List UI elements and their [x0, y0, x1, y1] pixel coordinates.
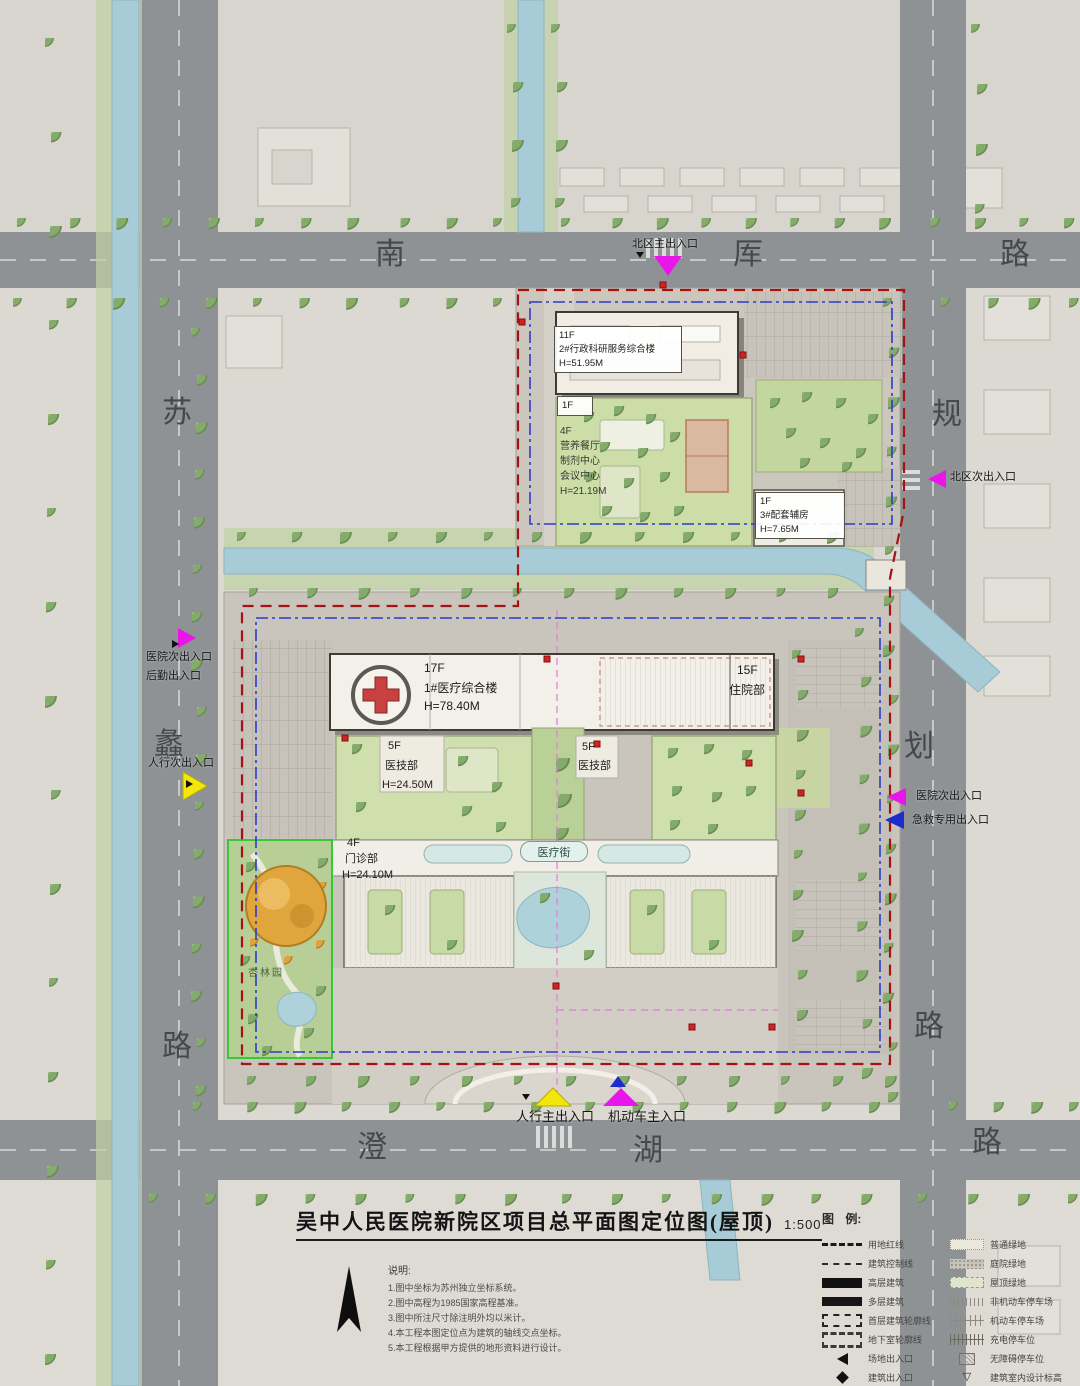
- road-label-west-3: 路: [162, 1030, 192, 1065]
- entrance-label-north-secondary: 北区次出入口: [950, 471, 1016, 484]
- label-building-3: 1F 3#配套辅房 H=7.65M: [755, 492, 845, 539]
- legend-label: 非机动车停车场: [990, 1295, 1053, 1308]
- note-line: 3.图中所注尺寸除注明外均以米计。: [388, 1311, 628, 1326]
- legend-left-column: 用地红线 建筑控制线 高层建筑 多层建筑 首层建筑轮廓线 地下室轮廓线 场地出入…: [822, 1235, 940, 1386]
- label-building-1-height: H=78.40M: [424, 700, 480, 714]
- road-label-east-3: 路: [914, 1010, 944, 1045]
- legend-label: 充电停车位: [990, 1333, 1035, 1346]
- entrance-label-west-hospital: 医院次出入口: [146, 651, 212, 664]
- legend-swatch-green-courtyard: [950, 1257, 984, 1270]
- label-building-1-name: 1#医疗综合楼: [424, 682, 497, 696]
- canal-west: [112, 0, 139, 1386]
- legend-swatch-car-parking: [950, 1314, 984, 1327]
- legend-right-column: 普通绿地 庭院绿地 屋顶绿地 非机动车停车场 机动车停车场 充电停车位 无障碍停…: [950, 1235, 1062, 1386]
- orange-tree-cluster: [246, 866, 326, 946]
- legend-swatch-building-entrance: [822, 1371, 862, 1384]
- legend-swatch-green-common: [950, 1238, 984, 1251]
- canopy-east: [598, 845, 690, 863]
- label-inpatient-name: 住院部: [729, 684, 765, 698]
- road-label-north-1: 南: [375, 238, 405, 273]
- canopy-west: [424, 845, 512, 863]
- legend-label: 普通绿地: [990, 1238, 1026, 1251]
- podium-floors: 1F: [562, 399, 588, 413]
- label-podium-1f: 1F: [557, 396, 593, 416]
- label-medtech-west-name: 医技部: [385, 760, 418, 773]
- legend-label: 高层建筑: [868, 1276, 904, 1289]
- label-outpatient-height: H=24.10M: [342, 869, 393, 882]
- label-medtech-east-floors: 5F: [582, 741, 595, 754]
- annex-line3: 会议中心: [560, 469, 606, 484]
- road-label-south-1: 澄: [357, 1131, 387, 1166]
- sheet-title: 吴中人民医院新院区项目总平面图定位图(屋顶) 1:500: [296, 1206, 822, 1241]
- title-text: 吴中人民医院新院区项目总平面图定位图(屋顶): [296, 1206, 774, 1236]
- legend-swatch-green-roof: [950, 1276, 984, 1289]
- note-line: 1.图中坐标为苏州独立坐标系统。: [388, 1281, 628, 1296]
- annex-line1: 营养餐厅: [560, 439, 606, 454]
- building-3-floors: 1F: [760, 495, 840, 509]
- annex-line2: 制剂中心: [560, 454, 606, 469]
- label-medical-street: 医疗街: [520, 841, 588, 862]
- road-label-west-1: 苏: [162, 396, 192, 431]
- canal-north: [518, 0, 544, 232]
- legend-label: 建筑出入口: [868, 1371, 913, 1384]
- legend-swatch-level-mark: ▽: [950, 1371, 984, 1384]
- building-3-name: 3#配套辅房: [760, 509, 840, 523]
- site-plan-sheet: 南 厍 路 澄 湖 路 苏 蠡 路 规 划 路 北区主出入口 北区次出入口 医院…: [0, 0, 1080, 1386]
- entrance-label-south-pedestrian: 人行主出入口: [516, 1110, 594, 1125]
- legend-label: 庭院绿地: [990, 1257, 1026, 1270]
- road-label-north-3: 路: [1000, 238, 1030, 273]
- notes-block: 说明: 1.图中坐标为苏州独立坐标系统。 2.图中高程为1985国家高程基准。 …: [388, 1264, 628, 1356]
- label-inpatient-floors: 15F: [737, 664, 758, 678]
- north-garden: [756, 380, 882, 472]
- road-label-south-3: 路: [972, 1126, 1002, 1161]
- plan-drawing: [0, 0, 1080, 1386]
- label-outpatient-floors: 4F: [347, 837, 360, 850]
- entrance-label-east-hospital: 医院次出入口: [916, 790, 982, 803]
- building-3-height: H=7.65M: [760, 523, 840, 537]
- legend-label: 场地出入口: [868, 1352, 913, 1365]
- legend-label: 用地红线: [868, 1238, 904, 1251]
- entrance-label-north-main: 北区主出入口: [632, 238, 698, 251]
- legend-label: 首层建筑轮廓线: [868, 1314, 931, 1327]
- building-2-name: 2#行政科研服务综合楼: [559, 343, 677, 357]
- legend-label: 无障碍停车位: [990, 1352, 1044, 1365]
- entrance-label-east-emergency: 急救专用出入口: [912, 814, 989, 827]
- label-annex: 4F 营养餐厅 制剂中心 会议中心 H=21.19M: [560, 424, 606, 499]
- legend-swatch-accessible-parking: [950, 1352, 984, 1365]
- parking-west: [232, 640, 332, 838]
- note-line: 2.图中高程为1985国家高程基准。: [388, 1296, 628, 1311]
- road-label-south-2: 湖: [633, 1134, 663, 1169]
- legend-swatch-control-line: [822, 1257, 862, 1270]
- notes-header: 说明:: [388, 1264, 628, 1279]
- legend-swatch-multistorey: [822, 1295, 862, 1308]
- legend-swatch-groundfloor-outline: [822, 1314, 862, 1327]
- label-outpatient-name: 门诊部: [345, 853, 378, 866]
- parking-north-east: [744, 292, 902, 378]
- legend-header: 图 例:: [822, 1210, 1074, 1227]
- legend-label: 多层建筑: [868, 1295, 904, 1308]
- label-medtech-west-height: H=24.50M: [382, 779, 433, 792]
- label-building-1-floors: 17F: [424, 662, 445, 676]
- annex-floors: 4F: [560, 424, 606, 439]
- label-building-2: 11F 2#行政科研服务综合楼 H=51.95M: [554, 326, 682, 373]
- legend-swatch-red-line: [822, 1238, 862, 1251]
- building-2-height: H=51.95M: [559, 357, 677, 371]
- legend-label: 地下室轮廓线: [868, 1333, 922, 1346]
- entrance-label-south-vehicle: 机动车主入口: [608, 1110, 686, 1125]
- note-line: 4.本工程本图定位点为建筑的轴线交点坐标。: [388, 1326, 628, 1341]
- label-medtech-east-name: 医技部: [578, 760, 611, 773]
- title-scale: 1:500: [784, 1217, 822, 1232]
- note-line: 5.本工程根据甲方提供的地形资料进行设计。: [388, 1341, 628, 1356]
- road-label-north-2: 厍: [733, 238, 763, 273]
- entrance-label-west-pedestrian: 人行次出入口: [148, 757, 214, 770]
- building-2-floors: 11F: [559, 329, 677, 343]
- entrance-label-west-logistics: 后勤出入口: [146, 670, 201, 683]
- label-medtech-west-floors: 5F: [388, 740, 401, 753]
- legend-swatch-ev-parking: [950, 1333, 984, 1346]
- legend-swatch-site-entrance: [822, 1352, 862, 1365]
- annex-height: H=21.19M: [560, 484, 606, 499]
- legend-label: 屋顶绿地: [990, 1276, 1026, 1289]
- legend-label: 机动车停车场: [990, 1314, 1044, 1327]
- legend-swatch-bike-parking: [950, 1295, 984, 1308]
- legend-label: 建筑控制线: [868, 1257, 913, 1270]
- road-label-east-1: 规: [932, 398, 962, 433]
- label-garden: 杏林园: [248, 968, 284, 980]
- legend-swatch-highrise: [822, 1276, 862, 1289]
- legend-swatch-basement-outline: [822, 1333, 862, 1346]
- legend-label: 建筑室内设计标高: [990, 1371, 1062, 1384]
- road-label-east-2: 划: [904, 730, 934, 765]
- legend: 图 例: 用地红线 建筑控制线 高层建筑 多层建筑 首层建筑轮廓线 地下室轮廓线…: [822, 1210, 1074, 1386]
